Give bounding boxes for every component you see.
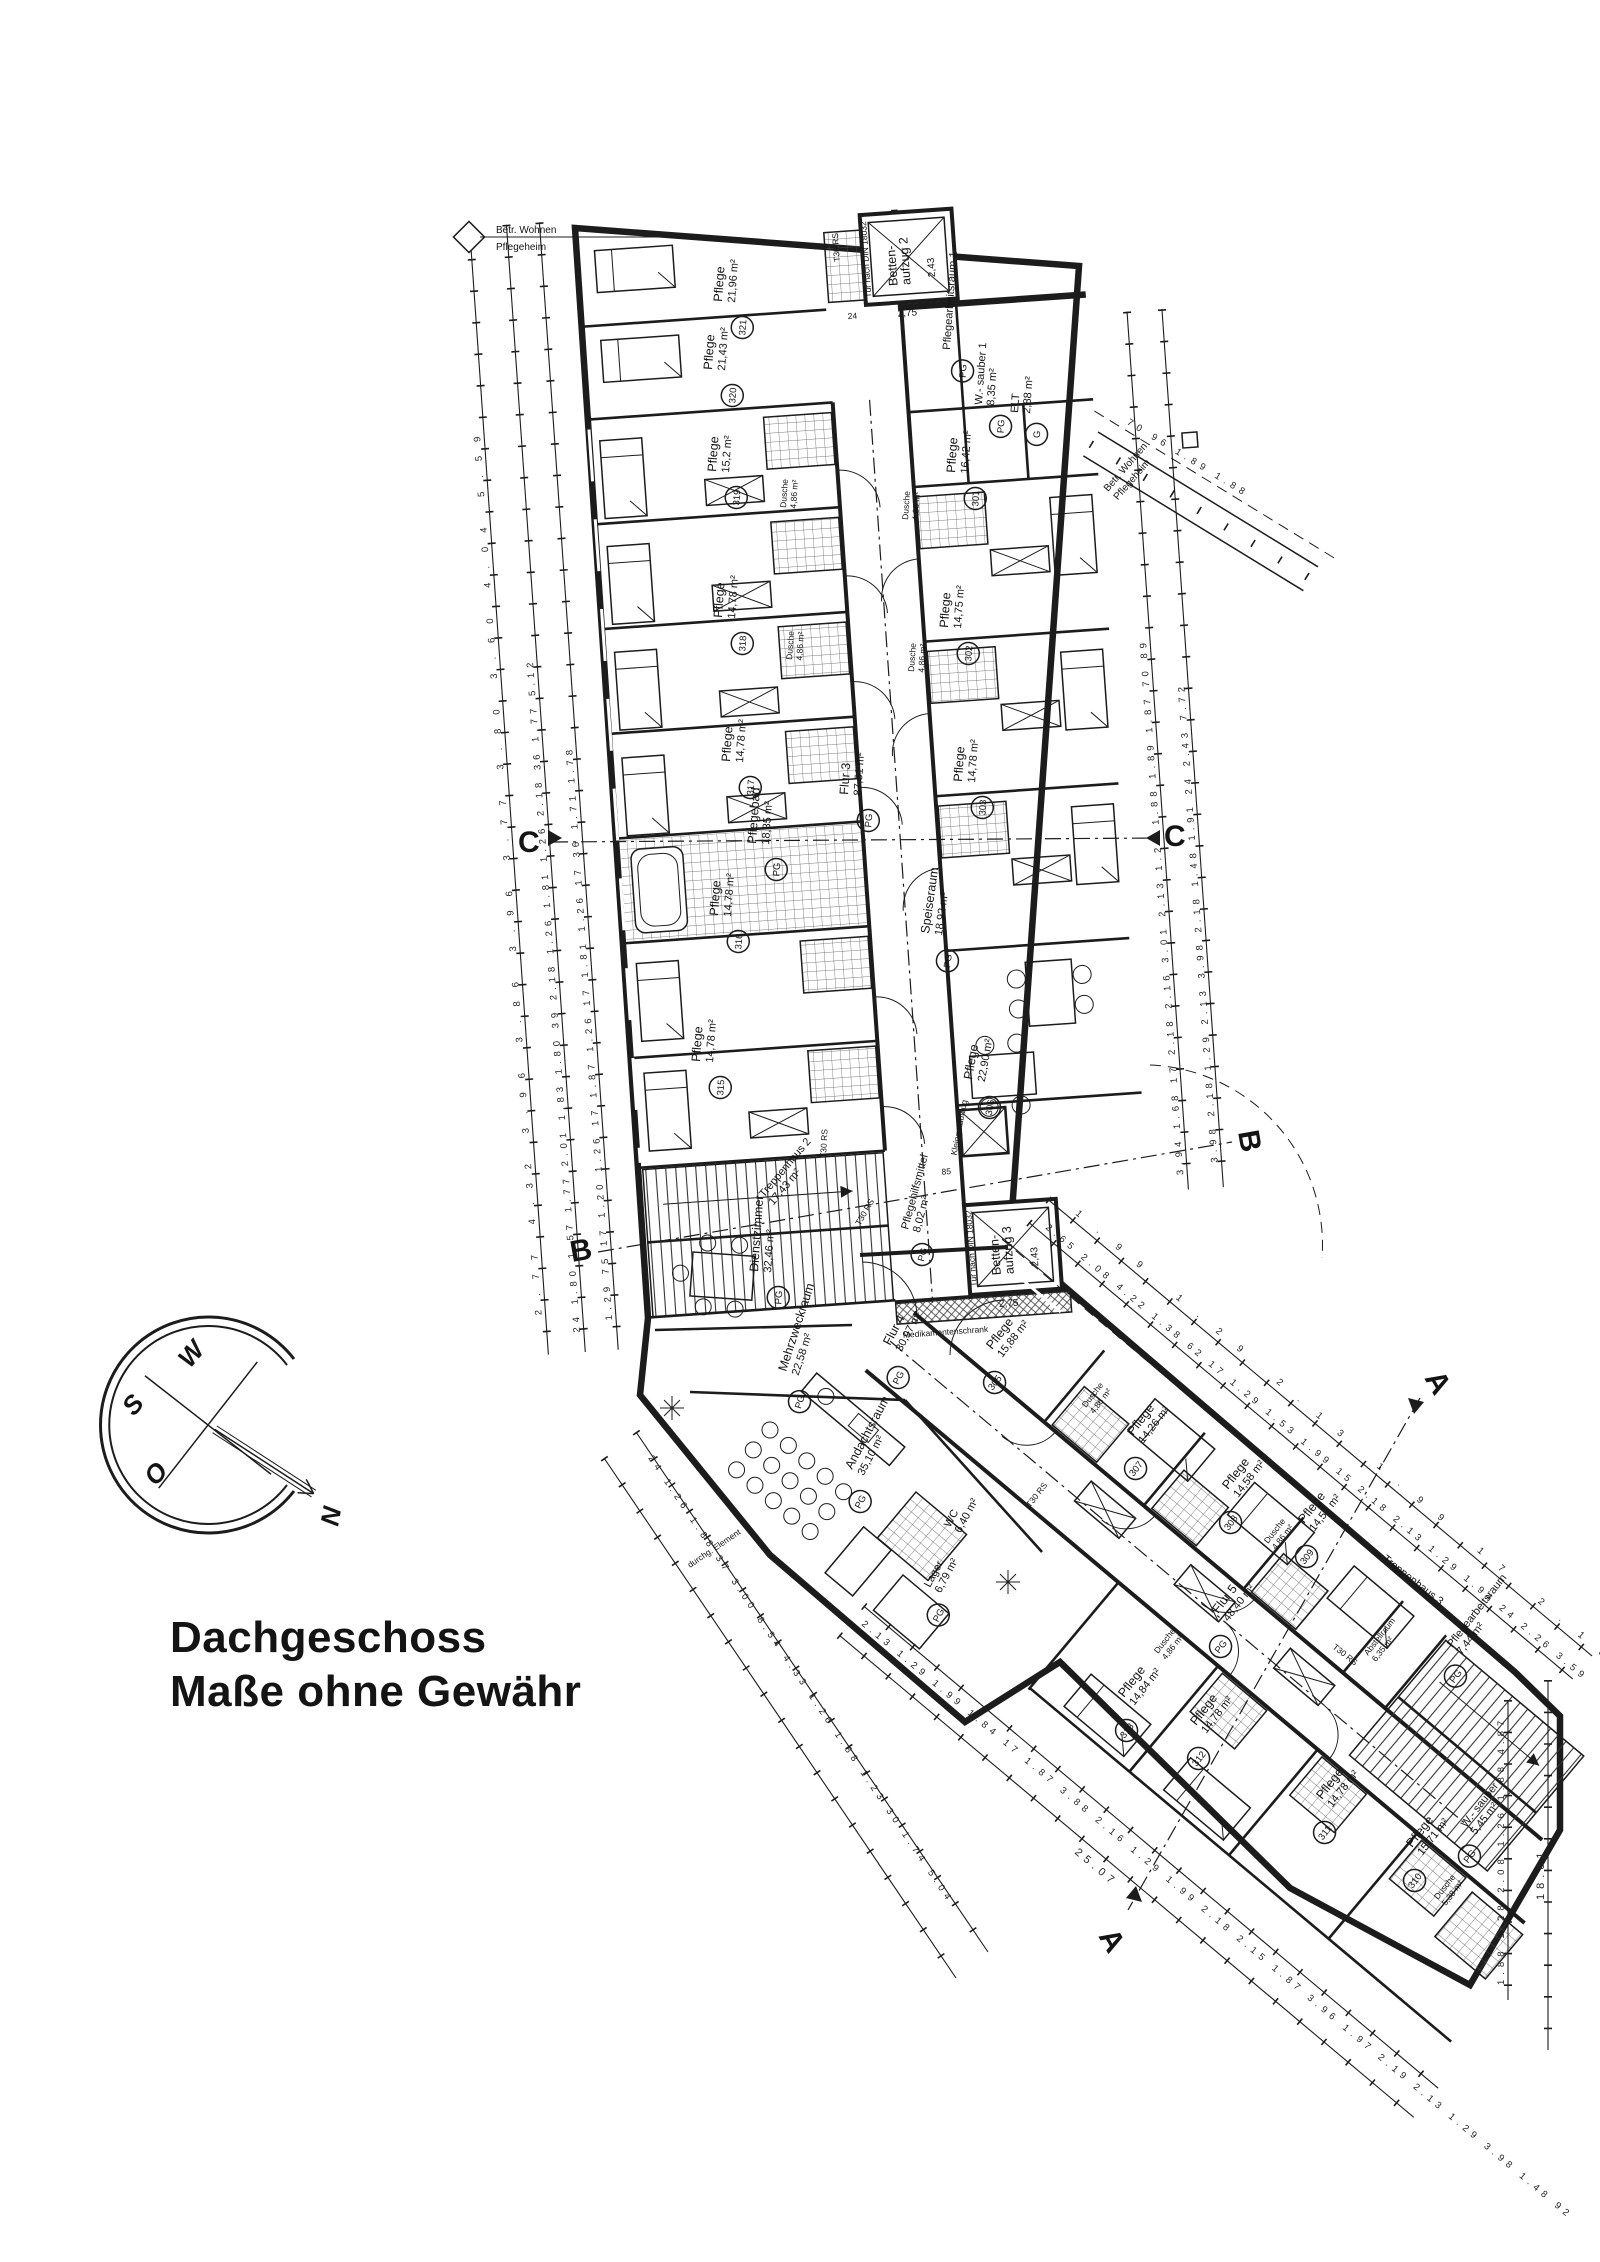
svg-text:301: 301 (970, 490, 982, 507)
svg-text:PG: PG (773, 1290, 785, 1304)
section-marker-b-right: B (1231, 1127, 1267, 1154)
svg-text:PG: PG (958, 364, 970, 378)
compass-s: S (116, 1388, 151, 1421)
svg-text:Pflege: Pflege (705, 436, 721, 472)
durchg-element-label: durchg. Element (686, 1526, 743, 1569)
svg-text:Pflege: Pflege (944, 437, 960, 473)
svg-text:25.07: 25.07 (1072, 1846, 1120, 1889)
svg-text:Pflege: Pflege (711, 266, 727, 302)
svg-text:18.61: 18.61 (1535, 1847, 1547, 1900)
kleingut-dim: 85 (941, 1166, 951, 1177)
compass-o: O (138, 1456, 174, 1491)
svg-text:303: 303 (977, 799, 989, 816)
fire-door-label: T30 RS (818, 1128, 830, 1158)
svg-text:Pflege: Pflege (707, 880, 723, 916)
svg-text:B: B (567, 1233, 594, 1269)
svg-text:319: 319 (731, 489, 743, 506)
svg-text:C: C (518, 826, 540, 859)
svg-text:Betr. Wohnen: Betr. Wohnen (496, 225, 556, 236)
svg-text:Pflege: Pflege (701, 334, 717, 370)
shower-label: Dusche4,86 m² (900, 490, 922, 520)
svg-text:PG: PG (996, 419, 1008, 433)
compass-rose: W S O N (96, 1313, 348, 1538)
entrance-ramp: 70 96 1.89 1.88 (1071, 399, 1342, 596)
page-title: Dachgeschoss (170, 1613, 487, 1662)
svg-text:2.77 4.32 3.96 3.86 3.96 3.77: 2.77 4.32 3.96 3.86 3.96 3.77 3.80 3.60 … (471, 422, 544, 1315)
svg-text:4,86 m²: 4,86 m² (916, 643, 928, 673)
title-block: Dachgeschoss Maße ohne Gewähr (170, 1613, 581, 1716)
fire-door-label: T30 RS (830, 232, 842, 262)
svg-text:321: 321 (737, 319, 749, 336)
compass-n: N (314, 1503, 347, 1528)
shower-label: Dusche4,86 m² (784, 630, 806, 660)
svg-text:Pflegeheim: Pflegeheim (496, 242, 546, 253)
svg-text:Flur 3: Flur 3 (837, 762, 853, 795)
svg-text:A: A (1092, 1923, 1131, 1958)
svg-text:1.88 1.28 2.08 1.26 1.88 4.87: 1.88 1.28 2.08 1.26 1.88 4.87 (1496, 1716, 1507, 1985)
svg-text:PG: PG (942, 953, 955, 968)
svg-text:3.98 2.18 1.29 2.13 3.98 2.18: 3.98 2.18 1.29 2.13 3.98 2.18 1.48 1.91 … (1176, 682, 1221, 1163)
svg-text:318: 318 (737, 635, 749, 652)
svg-text:B: B (1231, 1127, 1267, 1154)
compass-w: W (172, 1333, 212, 1373)
page-subtitle: Maße ohne Gewähr (170, 1667, 581, 1716)
svg-text:315: 315 (715, 1079, 727, 1096)
elevator2-depth: 2,75 (897, 307, 918, 319)
svg-text:Pflege: Pflege (689, 1026, 705, 1062)
svg-text:PG: PG (863, 813, 875, 827)
floor-plan-drawing: Betten- aufzug 2 2,43 2,75 Tür nach DIN … (0, 0, 1600, 2262)
section-marker-a-bottom: A (1092, 1886, 1142, 1958)
shower-label: Dusche4,86 m² (906, 642, 928, 672)
section-marker-a-top: A (1408, 1365, 1457, 1414)
north-arrow (210, 1423, 318, 1501)
svg-text:302: 302 (963, 645, 975, 662)
elevator3-depth: 2,75 (999, 1298, 1020, 1310)
svg-text:PG: PG (771, 862, 783, 876)
svg-text:Pflege: Pflege (951, 746, 967, 782)
svg-text:Pflege: Pflege (937, 592, 953, 628)
svg-text:A: A (1418, 1365, 1457, 1400)
svg-text:Pflege: Pflege (711, 582, 727, 618)
svg-text:320: 320 (727, 387, 739, 404)
svg-text:C: C (1164, 820, 1186, 853)
svg-text:316: 316 (733, 933, 745, 950)
svg-text:G: G (1032, 430, 1043, 438)
section-marker-b-left: B (567, 1233, 594, 1269)
svg-text:4,86 m²: 4,86 m² (794, 631, 806, 661)
drawing-sheet: Betten- aufzug 2 2,43 2,75 Tür nach DIN … (0, 0, 1600, 2262)
svg-text:Pflege: Pflege (719, 726, 735, 762)
elevator2-width: 2,43 (926, 257, 938, 278)
svg-text:4,86 m²: 4,86 m² (788, 479, 800, 509)
elevator2-sill: 24 (847, 311, 857, 322)
shower-label: Dusche4,86 m² (778, 478, 800, 508)
svg-text:4,86 m²: 4,86 m² (910, 491, 922, 521)
